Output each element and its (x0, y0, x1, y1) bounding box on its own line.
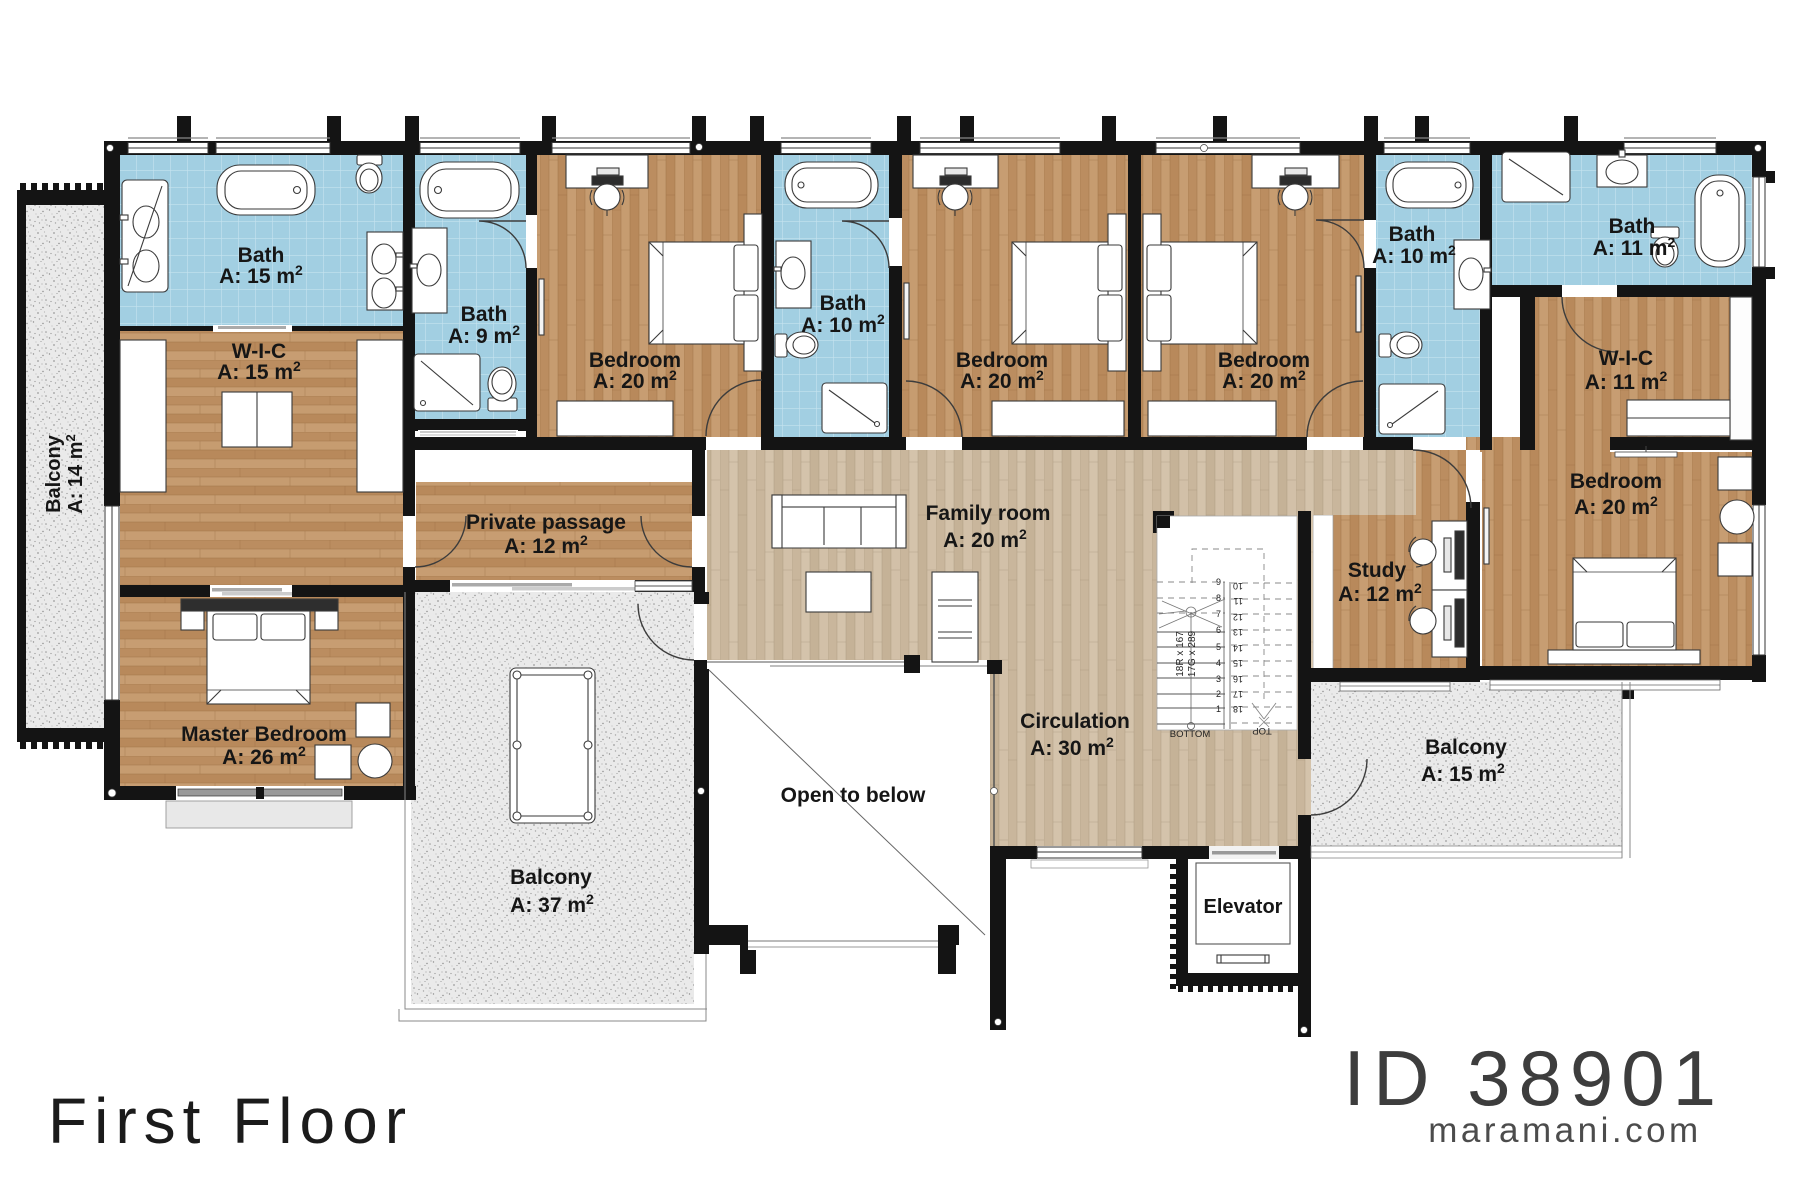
svg-text:W-I-C: W-I-C (1599, 347, 1653, 370)
svg-text:A: 12 m2: A: 12 m2 (504, 532, 588, 558)
svg-text:Balcony: Balcony (510, 866, 592, 889)
svg-text:Elevator: Elevator (1204, 896, 1283, 918)
svg-text:A: 20 m2: A: 20 m2 (593, 367, 677, 393)
svg-text:17G x 289: 17G x 289 (1187, 630, 1198, 677)
svg-text:17: 17 (1233, 689, 1243, 699)
svg-text:A: 9 m2: A: 9 m2 (448, 322, 520, 348)
svg-text:13: 13 (1233, 627, 1243, 637)
svg-text:BOTTOM: BOTTOM (1170, 729, 1211, 740)
svg-text:A: 10 m2: A: 10 m2 (801, 311, 885, 337)
svg-text:A: 37 m2: A: 37 m2 (510, 891, 594, 917)
svg-text:Bedroom: Bedroom (956, 349, 1048, 372)
svg-text:7: 7 (1216, 609, 1221, 619)
svg-text:Private passage: Private passage (466, 511, 626, 534)
svg-text:maramani.com: maramani.com (1428, 1111, 1701, 1150)
svg-text:5: 5 (1216, 642, 1221, 652)
svg-text:A: 20 m2: A: 20 m2 (1574, 493, 1658, 519)
svg-text:8: 8 (1216, 593, 1221, 603)
svg-text:Balcony: Balcony (1425, 736, 1507, 759)
svg-text:A: 20 m2: A: 20 m2 (960, 367, 1044, 393)
svg-text:A: 20 m2: A: 20 m2 (1222, 367, 1306, 393)
svg-text:Bath: Bath (461, 303, 508, 326)
svg-text:A: 30 m2: A: 30 m2 (1030, 734, 1114, 760)
svg-text:2: 2 (1216, 689, 1221, 699)
svg-text:A: 15 m2: A: 15 m2 (219, 262, 303, 288)
svg-text:Bedroom: Bedroom (1570, 470, 1662, 493)
svg-text:Bath: Bath (1609, 215, 1656, 238)
svg-text:Bath: Bath (238, 244, 285, 267)
svg-text:10: 10 (1233, 581, 1243, 591)
svg-text:First Floor: First Floor (48, 1085, 413, 1157)
svg-text:A: 15 m2: A: 15 m2 (1421, 760, 1505, 786)
svg-text:6: 6 (1216, 625, 1221, 635)
svg-text:A: 10 m2: A: 10 m2 (1372, 242, 1456, 268)
svg-text:4: 4 (1216, 658, 1221, 668)
svg-text:12: 12 (1233, 612, 1243, 622)
svg-text:A: 11 m2: A: 11 m2 (1585, 368, 1668, 394)
svg-text:15: 15 (1233, 658, 1243, 668)
svg-text:A: 15 m2: A: 15 m2 (217, 358, 301, 384)
svg-text:Circulation: Circulation (1020, 710, 1130, 733)
svg-text:1: 1 (1216, 704, 1221, 714)
svg-text:W-I-C: W-I-C (232, 340, 286, 363)
svg-text:A: 12 m2: A: 12 m2 (1338, 580, 1422, 606)
svg-text:Bath: Bath (1389, 223, 1436, 246)
svg-text:Open to below: Open to below (781, 784, 926, 807)
svg-text:A: 14 m2: A: 14 m2 (63, 434, 87, 513)
svg-text:Family room: Family room (926, 502, 1051, 525)
svg-text:3: 3 (1216, 674, 1221, 684)
svg-text:16: 16 (1233, 674, 1243, 684)
svg-text:11: 11 (1234, 596, 1243, 606)
svg-text:A: 20 m2: A: 20 m2 (943, 526, 1027, 552)
svg-text:ID 38901: ID 38901 (1343, 1034, 1724, 1122)
svg-text:A: 26 m2: A: 26 m2 (222, 743, 306, 769)
svg-text:Bedroom: Bedroom (1218, 349, 1310, 372)
svg-text:9: 9 (1216, 577, 1221, 587)
svg-text:Bedroom: Bedroom (589, 349, 681, 372)
svg-text:Balcony: Balcony (43, 434, 65, 513)
svg-text:18R x 167: 18R x 167 (1175, 631, 1186, 677)
svg-text:Master Bedroom: Master Bedroom (181, 723, 347, 746)
svg-text:18: 18 (1233, 704, 1243, 714)
svg-text:Study: Study (1348, 559, 1407, 582)
svg-text:A: 11 m2: A: 11 m2 (1593, 234, 1676, 260)
svg-text:14: 14 (1233, 643, 1243, 653)
svg-text:Bath: Bath (820, 292, 867, 315)
svg-text:TOP: TOP (1252, 725, 1271, 736)
